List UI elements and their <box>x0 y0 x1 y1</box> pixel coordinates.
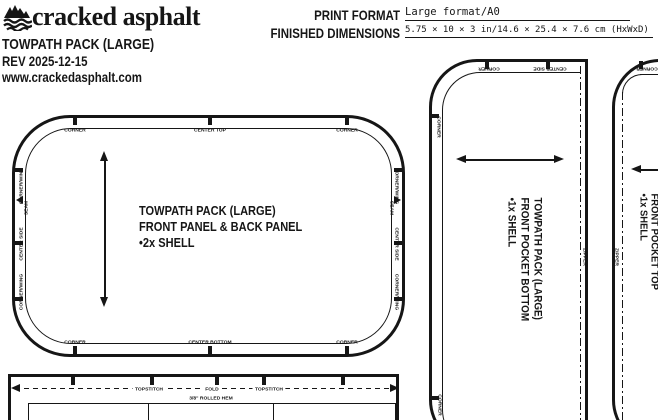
notch-tick <box>73 346 77 354</box>
grainline-arrowhead-right-icon <box>554 155 564 163</box>
piece-quantity: •2x SHELL <box>139 235 302 251</box>
piece-title: TOWPATH PACK (LARGE) <box>139 203 302 219</box>
fold-label: FOLD <box>203 386 221 392</box>
main-panel-label-block: TOWPATH PACK (LARGE) FRONT PANEL & BACK … <box>139 203 331 251</box>
seam-notch-arrow-icon <box>394 196 401 204</box>
notch-tick <box>208 117 212 125</box>
notch-tick <box>345 346 349 354</box>
pattern-sheet: cracked asphalt TOWPATH PACK (LARGE) REV… <box>0 0 658 420</box>
notch-label-corner: CORNER <box>64 127 85 133</box>
grainline-arrowhead-left-icon <box>631 165 641 173</box>
finished-dimensions-label: FINISHED DIMENSIONS <box>195 25 400 41</box>
grainline-arrowhead-down-icon <box>100 297 108 307</box>
strip-inner-line <box>28 403 396 404</box>
fold-line-arrowhead-left-icon <box>11 384 20 392</box>
revision-date: REV 2025-12-15 <box>2 53 88 69</box>
website-url: www.crackedasphalt.com <box>2 69 142 85</box>
finished-dimensions-value: 5.75 × 10 × 3 in/14.6 × 25.4 × 7.6 cm (H… <box>405 25 653 38</box>
strip-inner-line <box>28 403 29 420</box>
notch-label-center-top: CENTER TOP <box>194 127 226 133</box>
notch-label-center-side: CENTER SIDE <box>18 227 24 260</box>
notch-label-corner-wing: CORNER/WING <box>394 274 400 310</box>
notch-label-corner-wing: CORNER/WING <box>18 274 24 310</box>
notch-label-seam: SEAM <box>23 201 29 215</box>
zipper-label: ZIPPER <box>614 248 620 266</box>
notch-tick <box>73 117 77 125</box>
notch-tick <box>71 377 75 385</box>
notch-label-corner: CORNER <box>478 66 499 72</box>
topstitch-label: TOPSTITCH <box>253 386 286 392</box>
piece-subtitle: FRONT PANEL & BACK PANEL <box>139 219 302 235</box>
topstitch-label: TOPSTITCH <box>133 386 166 392</box>
notch-tick <box>215 377 219 385</box>
mountain-waves-logo-icon <box>2 3 32 31</box>
notch-label-corner: CORNER <box>336 127 357 133</box>
print-format-value: Large format/A0 <box>405 6 630 21</box>
piece-title: TOWPATH PACK (LARGE) <box>531 198 544 333</box>
notch-tick <box>262 377 266 385</box>
pocket-bottom-zipper-line <box>580 66 581 420</box>
strip-inner-line <box>395 403 396 420</box>
piece-subtitle: FRONT POCKET BOTTOM <box>518 198 531 333</box>
pocket-bottom-label-block: TOWPATH PACK (LARGE) FRONT POCKET BOTTOM… <box>505 198 544 348</box>
grainline-arrow <box>104 160 106 298</box>
notch-label-corner: CORNER <box>437 394 443 415</box>
notch-label-seam: SEAM <box>389 201 395 215</box>
notch-tick <box>341 377 345 385</box>
notch-label-center-bottom: CENTER BOTTOM <box>188 339 231 345</box>
strip-inner-line <box>148 403 149 420</box>
rolled-hem-label: 3/8" ROLLED HEM <box>189 395 232 401</box>
strip-inner-line <box>273 403 274 420</box>
pocket-top-zipper-line <box>622 92 623 420</box>
grainline-arrowhead-left-icon <box>456 155 466 163</box>
brand-name: cracked asphalt <box>32 2 200 32</box>
grainline-arrow <box>640 169 658 171</box>
notch-tick <box>345 117 349 125</box>
print-format-label: PRINT FORMAT <box>195 7 400 23</box>
pocket-top-label-block: TOWPATH PACK (LARGE) FRONT POCKET TOP •1… <box>638 194 658 344</box>
piece-subtitle: FRONT POCKET TOP <box>649 194 658 329</box>
fold-line-arrowhead-right-icon <box>390 384 399 392</box>
piece-quantity: •1x SHELL <box>638 194 649 329</box>
notch-label-corner: CORNER <box>336 339 357 345</box>
notch-tick <box>208 346 212 354</box>
notch-label-corner: CORNER <box>636 66 657 72</box>
product-title: TOWPATH PACK (LARGE) <box>2 36 154 53</box>
grainline-arrow <box>465 159 555 161</box>
notch-tick <box>150 377 154 385</box>
notch-label-corner: CORNER <box>64 339 85 345</box>
notch-label-center-side: CENTER SIDE <box>394 227 400 260</box>
notch-label-corner: CORNER <box>436 116 442 137</box>
zipper-label: ZIPPER <box>582 248 588 266</box>
piece-quantity: •1x SHELL <box>505 198 518 333</box>
seam-notch-arrow-icon <box>16 196 23 204</box>
notch-label-center-side: CENTER SIDE <box>533 66 566 72</box>
grainline-arrowhead-up-icon <box>100 151 108 161</box>
